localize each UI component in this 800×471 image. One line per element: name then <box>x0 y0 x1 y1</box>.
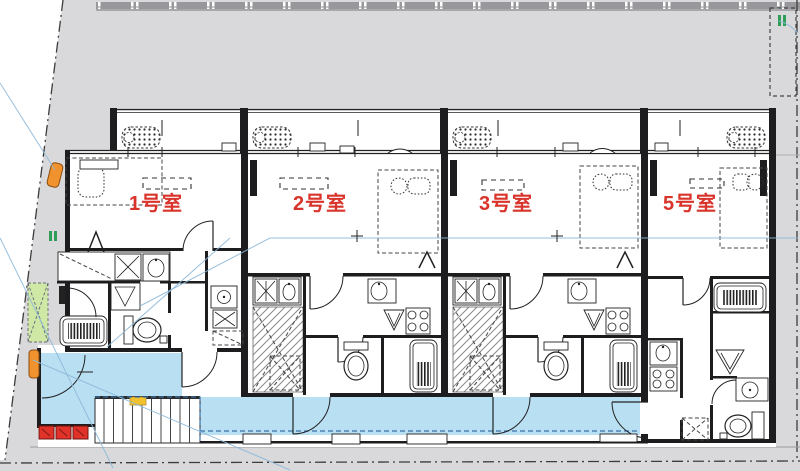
stove-icon <box>650 367 677 391</box>
sink-icon <box>143 254 169 281</box>
room-label-3: 3号室 <box>479 191 533 215</box>
vent-icon <box>655 143 668 151</box>
interior-wall <box>70 248 183 251</box>
balcony-pillar <box>640 108 648 154</box>
vent-icon <box>563 143 578 151</box>
interior-wall <box>680 338 683 398</box>
floor-plan-page: 1号室 2号室 3号室 5号室 <box>0 0 800 471</box>
stove-icon <box>115 254 141 280</box>
unit-divider-wall <box>641 152 648 443</box>
planting-area <box>28 283 48 342</box>
duct-stub <box>250 160 257 196</box>
vent-icon <box>222 143 236 151</box>
room-label-2: 2号室 <box>293 191 347 215</box>
ac-outdoor-unit-icon <box>253 127 291 148</box>
bathtub-icon <box>714 283 766 312</box>
unit1-south-wall <box>65 348 182 352</box>
stove-icon <box>213 310 237 328</box>
interior-wall <box>648 338 682 341</box>
entry-opening <box>641 402 648 434</box>
site-notch <box>65 108 110 150</box>
ac-outdoor-unit-icon <box>453 127 491 148</box>
shower-icon <box>111 283 140 310</box>
sink-icon <box>650 342 677 365</box>
vent-icon <box>310 143 325 151</box>
stairs-landing-marker <box>130 397 146 405</box>
washbasin-icon <box>736 378 768 401</box>
interior-wall <box>710 279 713 380</box>
sill-box <box>340 146 354 153</box>
entry-step <box>332 434 360 444</box>
ac-outdoor-unit-icon <box>727 127 765 148</box>
entry-step <box>407 434 447 444</box>
room-label-1: 1号室 <box>129 191 183 215</box>
unit1-south-wall <box>217 348 248 352</box>
interior-wall <box>710 276 769 279</box>
interior-wall <box>648 276 683 279</box>
floor-plan-canvas: 1号室 2号室 3号室 5号室 <box>0 0 800 471</box>
interior-wall <box>712 376 737 379</box>
unit-divider-wall <box>241 152 248 397</box>
boundary-fence <box>96 2 800 9</box>
interior-wall <box>168 335 171 352</box>
east-exterior-wall <box>769 108 776 443</box>
balcony-pillar <box>440 108 448 154</box>
meter-boxes <box>39 426 88 439</box>
entry-step <box>600 434 637 442</box>
interior-wall <box>710 405 713 443</box>
bicycle-object <box>29 350 39 378</box>
sink-icon <box>211 286 237 308</box>
unit-divider-wall <box>441 152 448 397</box>
ac-outdoor-unit-icon <box>122 127 160 148</box>
bathtub-icon <box>60 316 107 346</box>
balcony-pillar <box>110 108 117 150</box>
duct-stub <box>450 160 457 196</box>
entry-step <box>243 434 271 444</box>
staircase <box>95 396 200 443</box>
interior-wall <box>168 283 171 313</box>
interior-wall <box>205 251 208 331</box>
balcony-pillar <box>240 108 248 154</box>
stairs-body <box>95 398 200 443</box>
duct-stub <box>650 160 657 196</box>
duct-stub <box>760 160 767 196</box>
room-label-5: 5号室 <box>663 191 717 215</box>
